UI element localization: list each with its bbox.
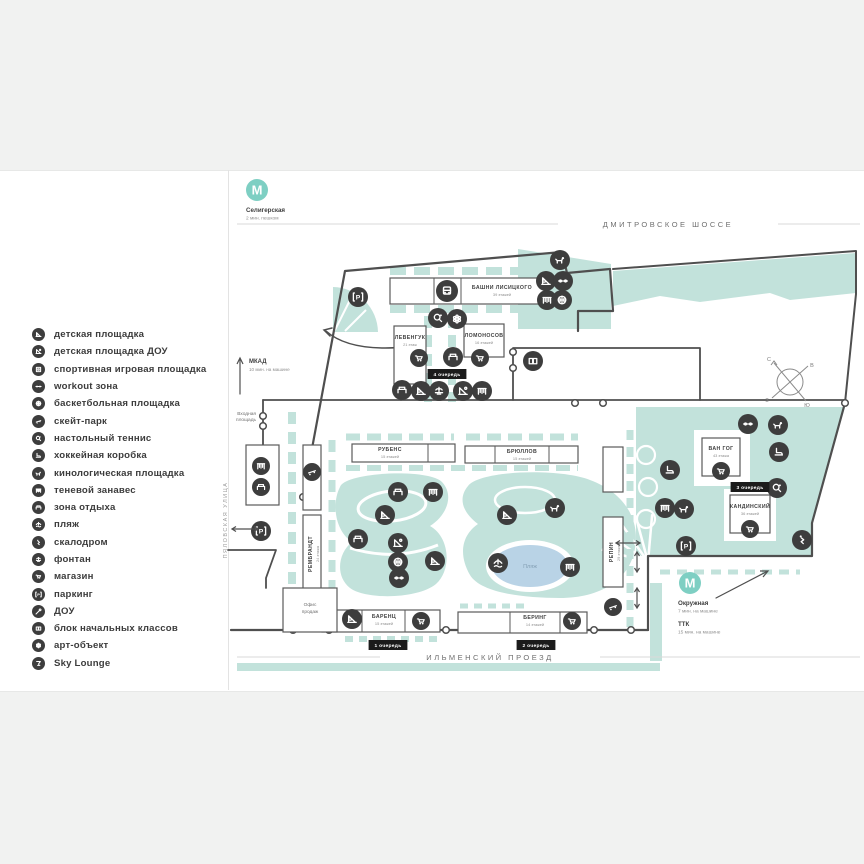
- building-block: [246, 445, 279, 505]
- shade-icon: [423, 482, 443, 502]
- phase-badge: 2 очередь: [517, 640, 556, 650]
- hockey-icon: [660, 460, 680, 480]
- building-name: РУБЕНС: [378, 447, 402, 453]
- building-floors: 15 этажей: [375, 621, 393, 626]
- svg-text:P: P: [684, 543, 689, 550]
- svg-text:P: P: [356, 294, 361, 301]
- skate-park-icon: [303, 463, 321, 481]
- table-tennis-icon: [767, 478, 787, 498]
- pond-label: Пляж: [523, 564, 537, 570]
- building-floors: 43 этажа: [713, 453, 730, 458]
- rest-icon: [392, 380, 412, 400]
- metro-icon: М: [252, 183, 263, 198]
- building-rubens: РУБЕНС15 этажей: [352, 444, 455, 462]
- hockey-icon: [769, 442, 789, 462]
- phase-badge-label: 2 очередь: [522, 643, 549, 649]
- road-label-ilmensky: ИЛЬМЕНСКИЙ ПРОЕЗД: [426, 653, 553, 662]
- entry-plaza-label: Входная: [237, 411, 256, 417]
- building-rembrandt: РЕМБРАНДТ24 этажа: [303, 515, 321, 593]
- building-floors: 15 этажей: [513, 456, 531, 461]
- skate-park-icon: [604, 598, 622, 616]
- road-node: [842, 400, 849, 407]
- building-name: РЕМБРАНДТ: [308, 536, 314, 572]
- building-repin: РЕПИН29 этажей: [603, 517, 623, 587]
- mkad-label: МКАД: [249, 359, 267, 365]
- rest-icon: [348, 529, 368, 549]
- parking-icon: P: [676, 536, 696, 556]
- road-node: [260, 423, 267, 430]
- building-name: ЛОМОНОСОВ: [465, 333, 504, 339]
- playground-icon: [411, 381, 431, 401]
- compass-e: В: [810, 363, 814, 369]
- road-node: [628, 627, 635, 634]
- shop-icon: [412, 612, 430, 630]
- beach-icon: [488, 553, 508, 573]
- road-node: [260, 413, 267, 420]
- phase-badge-label: 3 очередь: [736, 485, 763, 491]
- shop-icon: [712, 462, 730, 480]
- road-node: [510, 349, 517, 356]
- rest-icon: [388, 482, 408, 502]
- bus-icon: [436, 280, 458, 302]
- shop-icon: [741, 520, 759, 538]
- building-block: [603, 447, 623, 492]
- phase-badge: 4 очередь: [428, 369, 467, 379]
- road-node: [591, 627, 598, 634]
- building-name: ЛЕВЕНГУК: [395, 335, 426, 341]
- shade-icon: [472, 381, 492, 401]
- sales-office-label: Офис: [304, 602, 317, 608]
- building-floors: 29 этажей: [616, 543, 621, 561]
- basketball-icon: [552, 290, 572, 310]
- site-plan-map: ПляжДМИТРОВСКОЕ ШОССЕИЛЬМЕНСКИЙ ПРОЕЗДПЯ…: [0, 0, 864, 864]
- school-icon: [523, 351, 543, 371]
- shop-icon: [471, 349, 489, 367]
- metro-label: Селигерская: [246, 207, 285, 214]
- metro-label: Окружная: [678, 600, 709, 607]
- workout-icon: [553, 271, 573, 291]
- dog-area-icon: [768, 415, 788, 435]
- road-node: [443, 627, 450, 634]
- shade-icon: [655, 498, 675, 518]
- playground-dou-icon: [453, 381, 473, 401]
- building-floors: 16 этажей: [475, 340, 493, 345]
- building-floors: 21 этаж: [403, 342, 417, 347]
- phase-badge: 3 очередь: [731, 482, 770, 492]
- compass-rose: СВЗЮ: [765, 357, 814, 409]
- shade-icon: [560, 557, 580, 577]
- building-name: БЕРИНГ: [523, 615, 546, 621]
- shade-icon: [252, 457, 270, 475]
- road-node: [510, 365, 517, 372]
- building-name: РЕПИН: [609, 542, 615, 562]
- road-node: [600, 400, 607, 407]
- workout-icon: [738, 414, 758, 434]
- svg-text:продаж: продаж: [302, 610, 319, 615]
- building-floors: 39 этажей: [493, 292, 511, 297]
- building-name: КАНДИНСКИЙ: [730, 502, 770, 510]
- metro-icon: М: [685, 576, 696, 591]
- dog-area-icon: [545, 498, 565, 518]
- dog-area-icon: [550, 250, 570, 270]
- phase-badge: 1 очередь: [369, 640, 408, 650]
- building-floors: 15 этажей: [381, 454, 399, 459]
- building-floors: 36 этажей: [741, 511, 759, 516]
- svg-text:7 мин. на машине: 7 мин. на машине: [678, 609, 718, 615]
- svg-text:P: P: [259, 528, 264, 535]
- playground-icon: [497, 505, 517, 525]
- metro-marker-okruzhnaya: МОкружная7 мин. на машине: [678, 572, 718, 615]
- art-icon: [447, 309, 467, 329]
- shop-icon: [410, 349, 428, 367]
- compass-s: Ю: [804, 403, 810, 409]
- road-label-dmitrovskoe: ДМИТРОВСКОЕ ШОССЕ: [603, 220, 733, 229]
- compass-w: З: [765, 398, 769, 404]
- playground-icon: [342, 609, 362, 629]
- svg-text:площадь: площадь: [236, 418, 257, 423]
- climbing-icon: [792, 530, 812, 550]
- road-node: [572, 400, 579, 407]
- svg-text:15 мин. на машине: 15 мин. на машине: [678, 630, 721, 636]
- building-name: БАРЕНЦ: [372, 614, 396, 620]
- shop-icon: [563, 612, 581, 630]
- road-label-pyalovskaya: ПЯЛОВСКАЯ УЛИЦА: [223, 482, 229, 559]
- building-lisitsky: БАШНИ ЛИСИЦКОГО39 этажей: [390, 278, 545, 304]
- ttk-label: ТТК: [678, 621, 690, 628]
- svg-text:10 мин. на машине: 10 мин. на машине: [249, 367, 290, 372]
- svg-text:2 мин. пешком: 2 мин. пешком: [246, 216, 279, 222]
- workout-icon: [389, 568, 409, 588]
- building-floors: 24 этажа: [315, 545, 320, 562]
- phase-badge-label: 4 очередь: [433, 372, 460, 378]
- building-floors: 14 этажей: [526, 622, 544, 627]
- fountain-icon: [429, 381, 449, 401]
- rest-icon: [252, 478, 270, 496]
- playground-icon: [425, 551, 445, 571]
- dog-area-icon: [674, 499, 694, 519]
- table-tennis-icon: [428, 308, 448, 328]
- metro-marker-seligerskaya: МСелигерская2 мин. пешком: [246, 179, 285, 222]
- playground-dou-icon: [388, 533, 408, 553]
- phase-badge-label: 1 очередь: [374, 643, 401, 649]
- parking-icon: P: [348, 287, 368, 307]
- building-name: ВАН ГОГ: [708, 446, 733, 452]
- building-name: БАШНИ ЛИСИЦКОГО: [472, 285, 532, 291]
- building-bryullov: БРЮЛЛОВ15 этажей: [465, 446, 578, 463]
- playground-icon: [375, 505, 395, 525]
- site-plan-page: { "colors":{ "teal":"#7ecfc3","teal_ligh…: [0, 0, 864, 864]
- building-name: БРЮЛЛОВ: [507, 449, 537, 455]
- rest-icon: [443, 347, 463, 367]
- compass-n: С: [767, 357, 771, 363]
